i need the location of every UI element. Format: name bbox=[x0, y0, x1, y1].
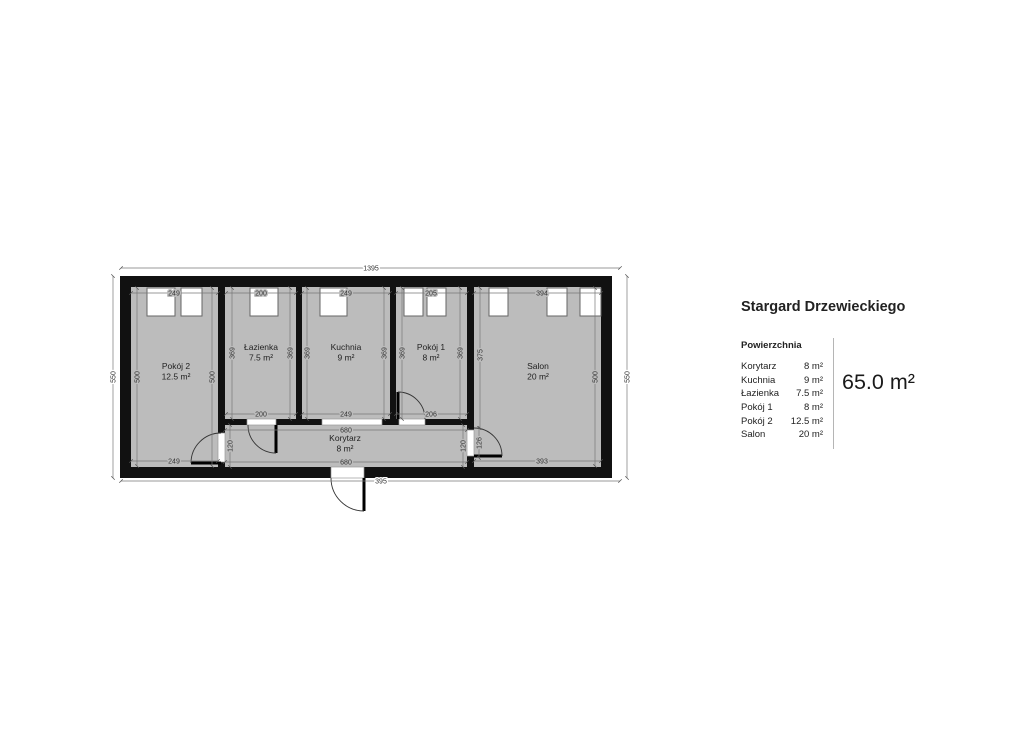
table-row: Kuchnia 9 m² bbox=[741, 374, 823, 388]
dim-lazienka-left: 369 bbox=[230, 347, 237, 359]
opening-salon-door bbox=[467, 430, 474, 456]
opening-pokoj2-door bbox=[218, 433, 225, 462]
wall-lazienka-kuchnia bbox=[296, 287, 302, 425]
room-label-salon: Salon bbox=[527, 361, 549, 371]
dim-korytarz-bottom: 680 bbox=[340, 460, 352, 467]
window-icon bbox=[580, 288, 601, 316]
dim-pokoj1-top: 205 bbox=[425, 291, 437, 298]
divider bbox=[833, 338, 834, 449]
dim-total-bottom: 395 bbox=[375, 479, 387, 486]
wall-kuchnia-pokoj1 bbox=[390, 287, 396, 425]
opening-kuchnia-passage bbox=[322, 419, 382, 425]
dim-lazienka-bottom: 200 bbox=[255, 412, 267, 419]
dim-kuchnia-bottom: 249 bbox=[340, 412, 352, 419]
window-icon bbox=[547, 288, 567, 316]
room-area-korytarz: 8 m² bbox=[337, 444, 354, 454]
table-row: Pokój 2 12.5 m² bbox=[741, 415, 823, 429]
area-table: Korytarz 8 m² Kuchnia 9 m² Łazienka 7.5 … bbox=[741, 360, 823, 442]
room-name-cell: Pokój 2 bbox=[741, 415, 773, 429]
total-area: 65.0 m² bbox=[842, 370, 915, 395]
opening-pokoj1-door bbox=[399, 419, 425, 425]
dim-pokoj2-bottom: 249 bbox=[168, 459, 180, 466]
dim-korytarz-right: 120 bbox=[461, 440, 468, 452]
dim-salon-right: 500 bbox=[593, 371, 600, 383]
dim-total-top: 1395 bbox=[363, 266, 379, 273]
room-area-kuchnia: 9 m² bbox=[338, 353, 355, 363]
room-area-pokoj2: 12.5 m² bbox=[162, 372, 191, 382]
room-area-pokoj1: 8 m² bbox=[423, 353, 440, 363]
dim-pokoj1-bottom: 206 bbox=[425, 412, 437, 419]
table-row: Korytarz 8 m² bbox=[741, 360, 823, 374]
room-name-cell: Pokój 1 bbox=[741, 401, 773, 415]
table-row: Salon 20 m² bbox=[741, 428, 823, 442]
dim-pokoj1-right: 369 bbox=[458, 347, 465, 359]
room-label-pokoj1: Pokój 1 bbox=[417, 342, 446, 352]
room-name-cell: Salon bbox=[741, 428, 765, 442]
room-label-lazienka: Łazienka bbox=[244, 342, 278, 352]
dim-korytarz-left: 120 bbox=[228, 440, 235, 452]
info-panel: Stargard Drzewieckiego Powierzchnia Kory… bbox=[741, 299, 981, 459]
dim-pokoj2-right: 500 bbox=[210, 371, 217, 383]
dim-kuchnia-right: 369 bbox=[382, 347, 389, 359]
dim-salon-door: 126 bbox=[477, 437, 484, 449]
room-label-kuchnia: Kuchnia bbox=[331, 342, 362, 352]
page-title: Stargard Drzewieckiego bbox=[741, 299, 905, 315]
room-name-cell: Kuchnia bbox=[741, 374, 775, 388]
dim-lazienka-right: 369 bbox=[288, 347, 295, 359]
opening-entrance-door bbox=[331, 467, 364, 478]
area-section-label: Powierzchnia bbox=[741, 340, 802, 351]
room-area-cell: 7.5 m² bbox=[796, 387, 823, 401]
room-name-cell: Łazienka bbox=[741, 387, 779, 401]
dim-kuchnia-left: 369 bbox=[305, 347, 312, 359]
room-area-salon: 20 m² bbox=[527, 372, 549, 382]
table-row: Łazienka 7.5 m² bbox=[741, 387, 823, 401]
dim-pokoj2-top: 249 bbox=[168, 291, 180, 298]
dim-outer-right: 550 bbox=[625, 371, 632, 383]
room-label-korytarz: Korytarz bbox=[329, 433, 361, 443]
room-area-lazienka: 7.5 m² bbox=[249, 353, 273, 363]
room-area-cell: 9 m² bbox=[804, 374, 823, 388]
room-area-cell: 12.5 m² bbox=[791, 415, 823, 429]
room-name-cell: Korytarz bbox=[741, 360, 776, 374]
dim-pokoj1-left: 369 bbox=[400, 347, 407, 359]
dim-salon-bottom: 393 bbox=[536, 459, 548, 466]
dim-kuchnia-top: 249 bbox=[340, 291, 352, 298]
entrance-door-arc bbox=[331, 478, 364, 511]
dim-pokoj2-left: 500 bbox=[135, 371, 142, 383]
room-area-cell: 20 m² bbox=[799, 428, 823, 442]
dim-salon-top: 394 bbox=[536, 291, 548, 298]
table-row: Pokój 1 8 m² bbox=[741, 401, 823, 415]
room-area-cell: 8 m² bbox=[804, 401, 823, 415]
room-label-pokoj2: Pokój 2 bbox=[162, 361, 191, 371]
room-area-cell: 8 m² bbox=[804, 360, 823, 374]
dim-outer-left: 550 bbox=[111, 371, 118, 383]
dim-lazienka-top: 200 bbox=[255, 291, 267, 298]
opening-lazienka-door bbox=[247, 419, 276, 425]
window-icon bbox=[489, 288, 508, 316]
dim-salon-left: 375 bbox=[478, 349, 485, 361]
window-icon bbox=[181, 288, 202, 316]
window-icon bbox=[404, 288, 423, 316]
